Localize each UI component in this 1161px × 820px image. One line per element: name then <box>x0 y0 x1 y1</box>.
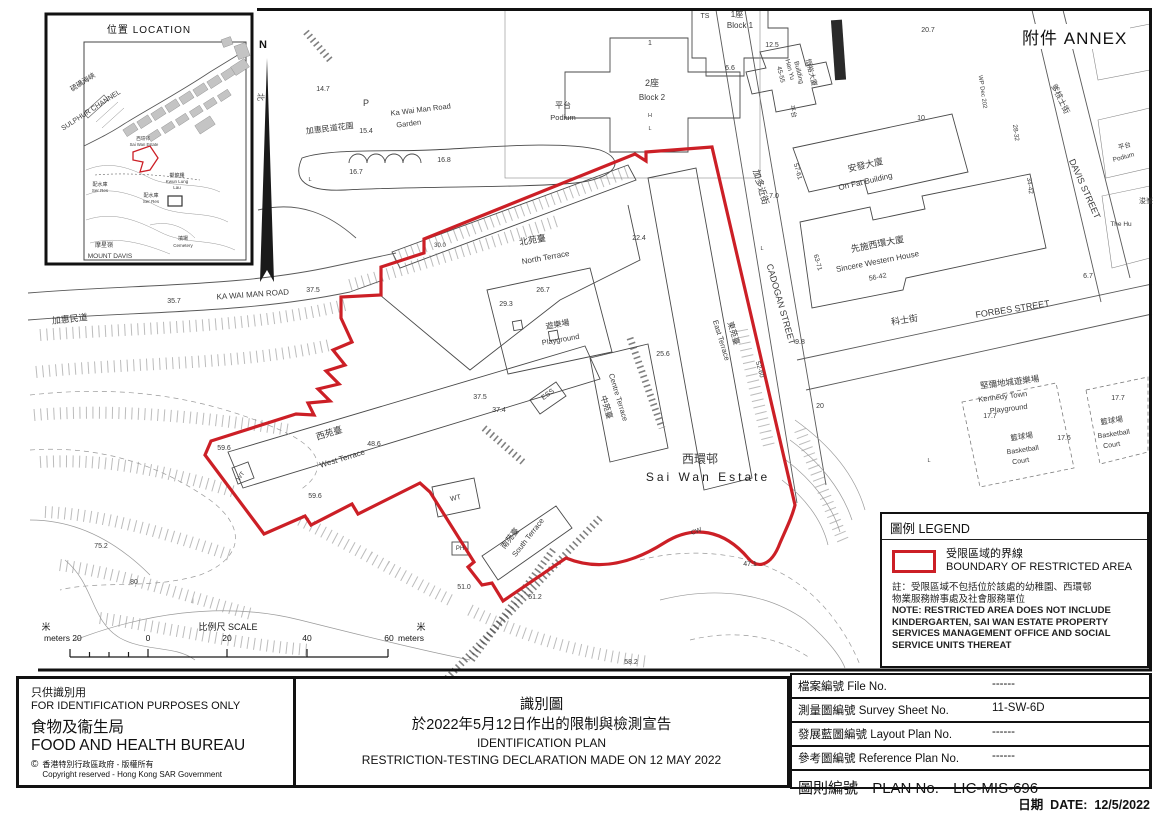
row-label-en: File No. <box>847 681 887 693</box>
structure-label-ts: TS <box>701 13 710 20</box>
scale-bar <box>70 649 388 657</box>
inset-label-kwun-lung-lau: Kwun Lung <box>166 179 189 184</box>
inset-building <box>168 196 182 206</box>
building-label-playground: Playground <box>541 332 580 347</box>
spot-height: 6.6 <box>725 65 735 72</box>
plan-title-block: 識別圖 於2022年5月12日作出的限制與檢測宣告 IDENTIFICATION… <box>296 676 790 788</box>
spot-height: 16.7 <box>349 169 363 176</box>
building-label-playground-zh: 遊樂場 <box>545 317 570 331</box>
scale-label: 米 <box>41 621 50 632</box>
building-label-basketball2b: Court <box>1103 441 1121 450</box>
street-label-davis-street: DAVIS STREET <box>1067 157 1103 220</box>
spot-height: 25.6 <box>656 351 670 358</box>
building-label-han-yu-zh: 恒裕大廈 <box>804 58 820 87</box>
building-label-north-terrace-zh: 北苑臺 <box>518 232 547 248</box>
identification-note-en: FOR IDENTIFICATION PURPOSES ONLY <box>31 700 281 713</box>
annex-zh: 附件 <box>1022 29 1058 48</box>
inset-label-cemetery-zh: 墳場 <box>178 235 188 242</box>
north-arrow-icon <box>260 58 274 282</box>
spot-height: 47.1 <box>743 561 757 568</box>
building-label-block2-zh: 2座 <box>645 77 659 88</box>
row-value: ------ <box>992 678 1015 690</box>
spot-height: 17.7 <box>1111 395 1125 402</box>
spot-height: 26.7 <box>536 287 550 294</box>
legend-title: 圖例 LEGEND <box>882 514 1147 540</box>
identification-plan-sheet: 位置 LOCATION硫磺海峽SULPHUR CHANNEL西環邨Sai Wan… <box>0 0 1161 820</box>
legend-note-zh1: 註：受限區域不包括位於該處的幼稚園、西環邨 <box>892 582 1139 594</box>
spot-height: 9.8 <box>795 339 805 346</box>
spot-height: 15.4 <box>359 128 373 135</box>
table-row-reference-plan: 參考圖編號 Reference Plan No. ------ <box>792 747 1149 771</box>
street-label-forbes-street-zh: 科士街 <box>890 312 918 327</box>
building-label-north-terrace: North Terrace <box>521 249 571 266</box>
utility-marker: H <box>648 113 652 119</box>
spot-height: 17.6 <box>1057 435 1071 442</box>
identification-note-zh: 只供識別用 <box>31 687 281 700</box>
street-label-ka-wai-man-road: KA WAI MAN ROAD <box>216 287 289 301</box>
building-label-block1-zh: 1座 <box>731 9 743 19</box>
house-number: 34-42 <box>1025 177 1034 195</box>
plan-title-zh2: 於2022年5月12日作出的限制與檢測宣告 <box>296 716 787 734</box>
plan-title-zh1: 識別圖 <box>296 696 787 714</box>
inset-label-sai-wan-estate: Sai Wan Estate <box>130 142 159 147</box>
building-label-on-fat: On Fat Building <box>838 171 894 192</box>
scale-label: 20 <box>72 633 82 643</box>
spot-height: 10 <box>917 115 925 122</box>
building-label-basketball1b: Court <box>1012 457 1030 466</box>
building-label-basketball2-zh: 籃球場 <box>1100 413 1124 426</box>
building-label-on-fat-zh: 安發大廈 <box>846 155 884 174</box>
spot-height: 75.2 <box>94 543 108 550</box>
hatched-structure <box>831 20 846 81</box>
spot-height: 22.4 <box>632 235 646 242</box>
building-label-west-terrace-zh: 西苑臺 <box>314 423 343 441</box>
annotation-wp-dec: WP Dec 202 <box>977 75 988 110</box>
north-label: N <box>259 39 267 51</box>
spot-height: 59.6 <box>217 445 231 452</box>
row-value: ------ <box>992 750 1015 762</box>
contour-lines <box>30 391 865 668</box>
copyright-zh: 香港特別行政區政府 - 版權所有 <box>42 760 153 769</box>
spot-height: 51.0 <box>457 584 471 591</box>
plan-title-en1: IDENTIFICATION PLAN <box>296 736 787 751</box>
scale-label: 60 <box>384 633 394 643</box>
table-row-file-no: 檔案編號 File No. ------ <box>792 675 1149 699</box>
building-label-podium: Podium <box>550 113 575 122</box>
inset-label-cemetery: Cemetery <box>173 243 193 248</box>
house-number: 45-55 <box>775 66 786 84</box>
table-row-survey-sheet: 測量圖編號 Survey Sheet No. 11-SW-6D <box>792 699 1149 723</box>
legend-note-en2: KINDERGARTEN, SAI WAN ESTATE PROPERTY <box>892 617 1139 629</box>
building-label-podium3: Podium <box>1112 151 1135 163</box>
copyright-en: Copyright reserved - Hong Kong SAR Gover… <box>42 770 222 779</box>
inset-title: 位置 LOCATION <box>107 23 191 36</box>
building-label-east-terrace-zh: 東苑臺 <box>726 320 743 346</box>
scale-label: 40 <box>302 633 312 643</box>
spot-label: 1 <box>648 40 652 47</box>
legend-note-en1: NOTE: RESTRICTED AREA DOES NOT INCLUDE <box>892 605 1139 617</box>
date-label-en: DATE: <box>1050 798 1087 812</box>
building-label-podium2-zh: 平台 <box>787 104 799 119</box>
structure-label-ph: PH <box>456 546 464 552</box>
scale-label: 0 <box>146 633 151 643</box>
spot-height: 35.7 <box>167 298 181 305</box>
street-label-cadogan-street-zh: 加多近街 <box>751 168 772 206</box>
building-label-west-terrace: West Terrace <box>319 447 367 469</box>
legend-note-en4: SERVICE UNITS THEREAT <box>892 640 1139 652</box>
building-label-block1: Block 1 <box>727 21 754 30</box>
building-label-sincere-zh: 先施西環大廈 <box>850 233 905 254</box>
building-label-garden2: Garden <box>396 118 422 130</box>
spot-height: 51.2 <box>528 594 542 601</box>
spot-height: 7.0 <box>769 193 779 200</box>
house-number: 63-71 <box>812 254 823 272</box>
scale-label: meters <box>44 633 70 643</box>
spot-height: 14.7 <box>316 86 330 93</box>
inset-label-kwun-lung-lau-zh: 觀龍樓 <box>169 172 184 179</box>
building-label-basketball1: Basketball <box>1006 445 1039 456</box>
row-label-en: Reference Plan No. <box>859 753 959 765</box>
annex-en: ANNEX <box>1064 29 1128 48</box>
row-label-zh: 參考圖編號 <box>798 753 856 765</box>
spot-height: 37.4 <box>492 407 506 414</box>
structure-label-ess: ESS <box>540 388 556 402</box>
row-value: 11-SW-6D <box>992 702 1045 714</box>
building-label-hudson-zh: 浚峯 <box>1139 196 1153 205</box>
row-label-zh: 發展藍圖編號 <box>798 729 867 741</box>
copyright-text: 香港特別行政區政府 - 版權所有 Copyright reserved - Ho… <box>42 760 222 779</box>
spot-height: 37.5 <box>306 287 320 294</box>
annex-tag: 附件 ANNEX <box>1019 24 1130 49</box>
street-label-ka-wai-man-road-zh: 加惠民道 <box>51 311 88 326</box>
legend-box: 圖例 LEGEND 受限區域的界線 BOUNDARY OF RESTRICTED… <box>880 512 1149 668</box>
location-inset: 位置 LOCATION硫磺海峽SULPHUR CHANNEL西環邨Sai Wan… <box>46 14 252 264</box>
issuer-block: 只供識別用 FOR IDENTIFICATION PURPOSES ONLY 食… <box>16 676 296 788</box>
spot-height: 30.0 <box>434 243 446 249</box>
building-label-sincere: Sincere Western House <box>835 249 920 274</box>
structure-label-wt: WT <box>450 494 463 503</box>
date-line: 日期 DATE: 12/5/2022 <box>790 794 1150 813</box>
spot-height: 58.2 <box>624 659 638 666</box>
row-label-zh: 檔案編號 <box>798 681 844 693</box>
row-value: ------ <box>992 726 1015 738</box>
spot-height: 59.6 <box>308 493 322 500</box>
spot-height: 48.6 <box>367 441 381 448</box>
spot-height: 17.7 <box>983 413 997 420</box>
spot-height: 80 <box>130 579 138 586</box>
date-value: 12/5/2022 <box>1094 798 1150 812</box>
house-number: 56-42 <box>868 272 887 282</box>
bureau-name-en: FOOD AND HEALTH BUREAU <box>31 737 281 755</box>
north-label-zh: 北 <box>256 93 265 101</box>
building-label-block2: Block 2 <box>639 93 666 102</box>
copyright-icon: © <box>31 760 38 779</box>
scale-title: 比例尺 SCALE <box>198 621 257 632</box>
spot-height: 20 <box>816 403 824 410</box>
building-label-podium3-zh: 平台 <box>1117 140 1132 152</box>
inset-label-kwun-lung-lau2: Lau <box>173 185 181 190</box>
spot-height: 29.3 <box>499 301 513 308</box>
table-row-layout-plan: 發展藍圖編號 Layout Plan No. ------ <box>792 723 1149 747</box>
scale-label: 20 <box>222 633 232 643</box>
building-label-hudson: The Hu <box>1110 221 1132 228</box>
house-number: 28-32 <box>1011 124 1020 142</box>
spot-height: 6.7 <box>1083 273 1093 280</box>
row-label-en: Layout Plan No. <box>870 729 952 741</box>
legend-note-en3: SERVICES MANAGEMENT OFFICE AND SOCIAL <box>892 628 1139 640</box>
legend-note-zh2: 物業服務辦事處及社會服務單位 <box>892 594 1139 606</box>
spot-height: 12.5 <box>765 42 779 49</box>
utility-marker: L <box>760 246 763 252</box>
legend-note: 註：受限區域不包括位於該處的幼稚園、西環邨 物業服務辦事處及社會服務單位 NOT… <box>882 574 1147 651</box>
row-label-en: Survey Sheet No. <box>859 705 949 717</box>
inset-label-service-reservoir2: Ser Res <box>143 199 160 204</box>
utility-marker: L <box>308 177 311 183</box>
building-label-garden: Ka Wai Man Road <box>390 101 451 117</box>
spot-height: 16.8 <box>437 157 451 164</box>
structure-label-cw: CW <box>690 526 703 537</box>
spot-height: 37.5 <box>473 394 487 401</box>
scale-label: meters <box>398 633 424 643</box>
legend-boundary-en: BOUNDARY OF RESTRICTED AREA <box>946 561 1132 574</box>
structure-label-wt2: WT <box>236 471 246 482</box>
structure-label-p: P <box>363 98 369 108</box>
restricted-area-boundary <box>205 147 795 601</box>
utility-marker: L <box>927 458 930 464</box>
inset-label-service-reservoir: Ser Res <box>92 188 109 193</box>
estate-name-zh: 西環邨 <box>682 452 718 466</box>
building-label-basketball1-zh: 籃球場 <box>1010 429 1034 442</box>
reference-table: 檔案編號 File No. ------ 測量圖編號 Survey Sheet … <box>790 673 1152 789</box>
legend-boundary-zh: 受限區域的界線 <box>946 548 1132 561</box>
inset-label-mount-davis: MOUNT DAVIS <box>88 253 133 260</box>
boundary-symbol <box>892 550 936 573</box>
utility-marker: L <box>648 126 651 132</box>
spot-height: 20.7 <box>921 27 935 34</box>
inset-label-sai-wan-estate-zh: 西環邨 <box>136 135 150 142</box>
inset-label-service-reservoir-zh: 配水庫 <box>92 181 107 188</box>
building-label-podium-zh: 平台 <box>555 100 571 110</box>
row-label-zh: 測量圖編號 <box>798 705 856 717</box>
street-label-forbes-street: FORBES STREET <box>975 298 1051 320</box>
inset-label-mount-davis-zh: 摩星嶺 <box>95 241 113 249</box>
house-number: 57-61 <box>792 163 803 181</box>
date-label-zh: 日期 <box>1018 798 1043 812</box>
building-label-garden-zh: 加惠民道花園 <box>305 120 354 136</box>
estate-name-en: Sai Wan Estate <box>646 470 770 484</box>
building-label-basketball2: Basketball <box>1097 429 1130 440</box>
scale-label: 米 <box>416 621 425 632</box>
plan-title-en2: RESTRICTION-TESTING DECLARATION MADE ON … <box>296 753 787 768</box>
inset-label-service-reservoir2-zh: 配水庫 <box>143 192 158 199</box>
bureau-name-zh: 食物及衞生局 <box>31 719 281 737</box>
